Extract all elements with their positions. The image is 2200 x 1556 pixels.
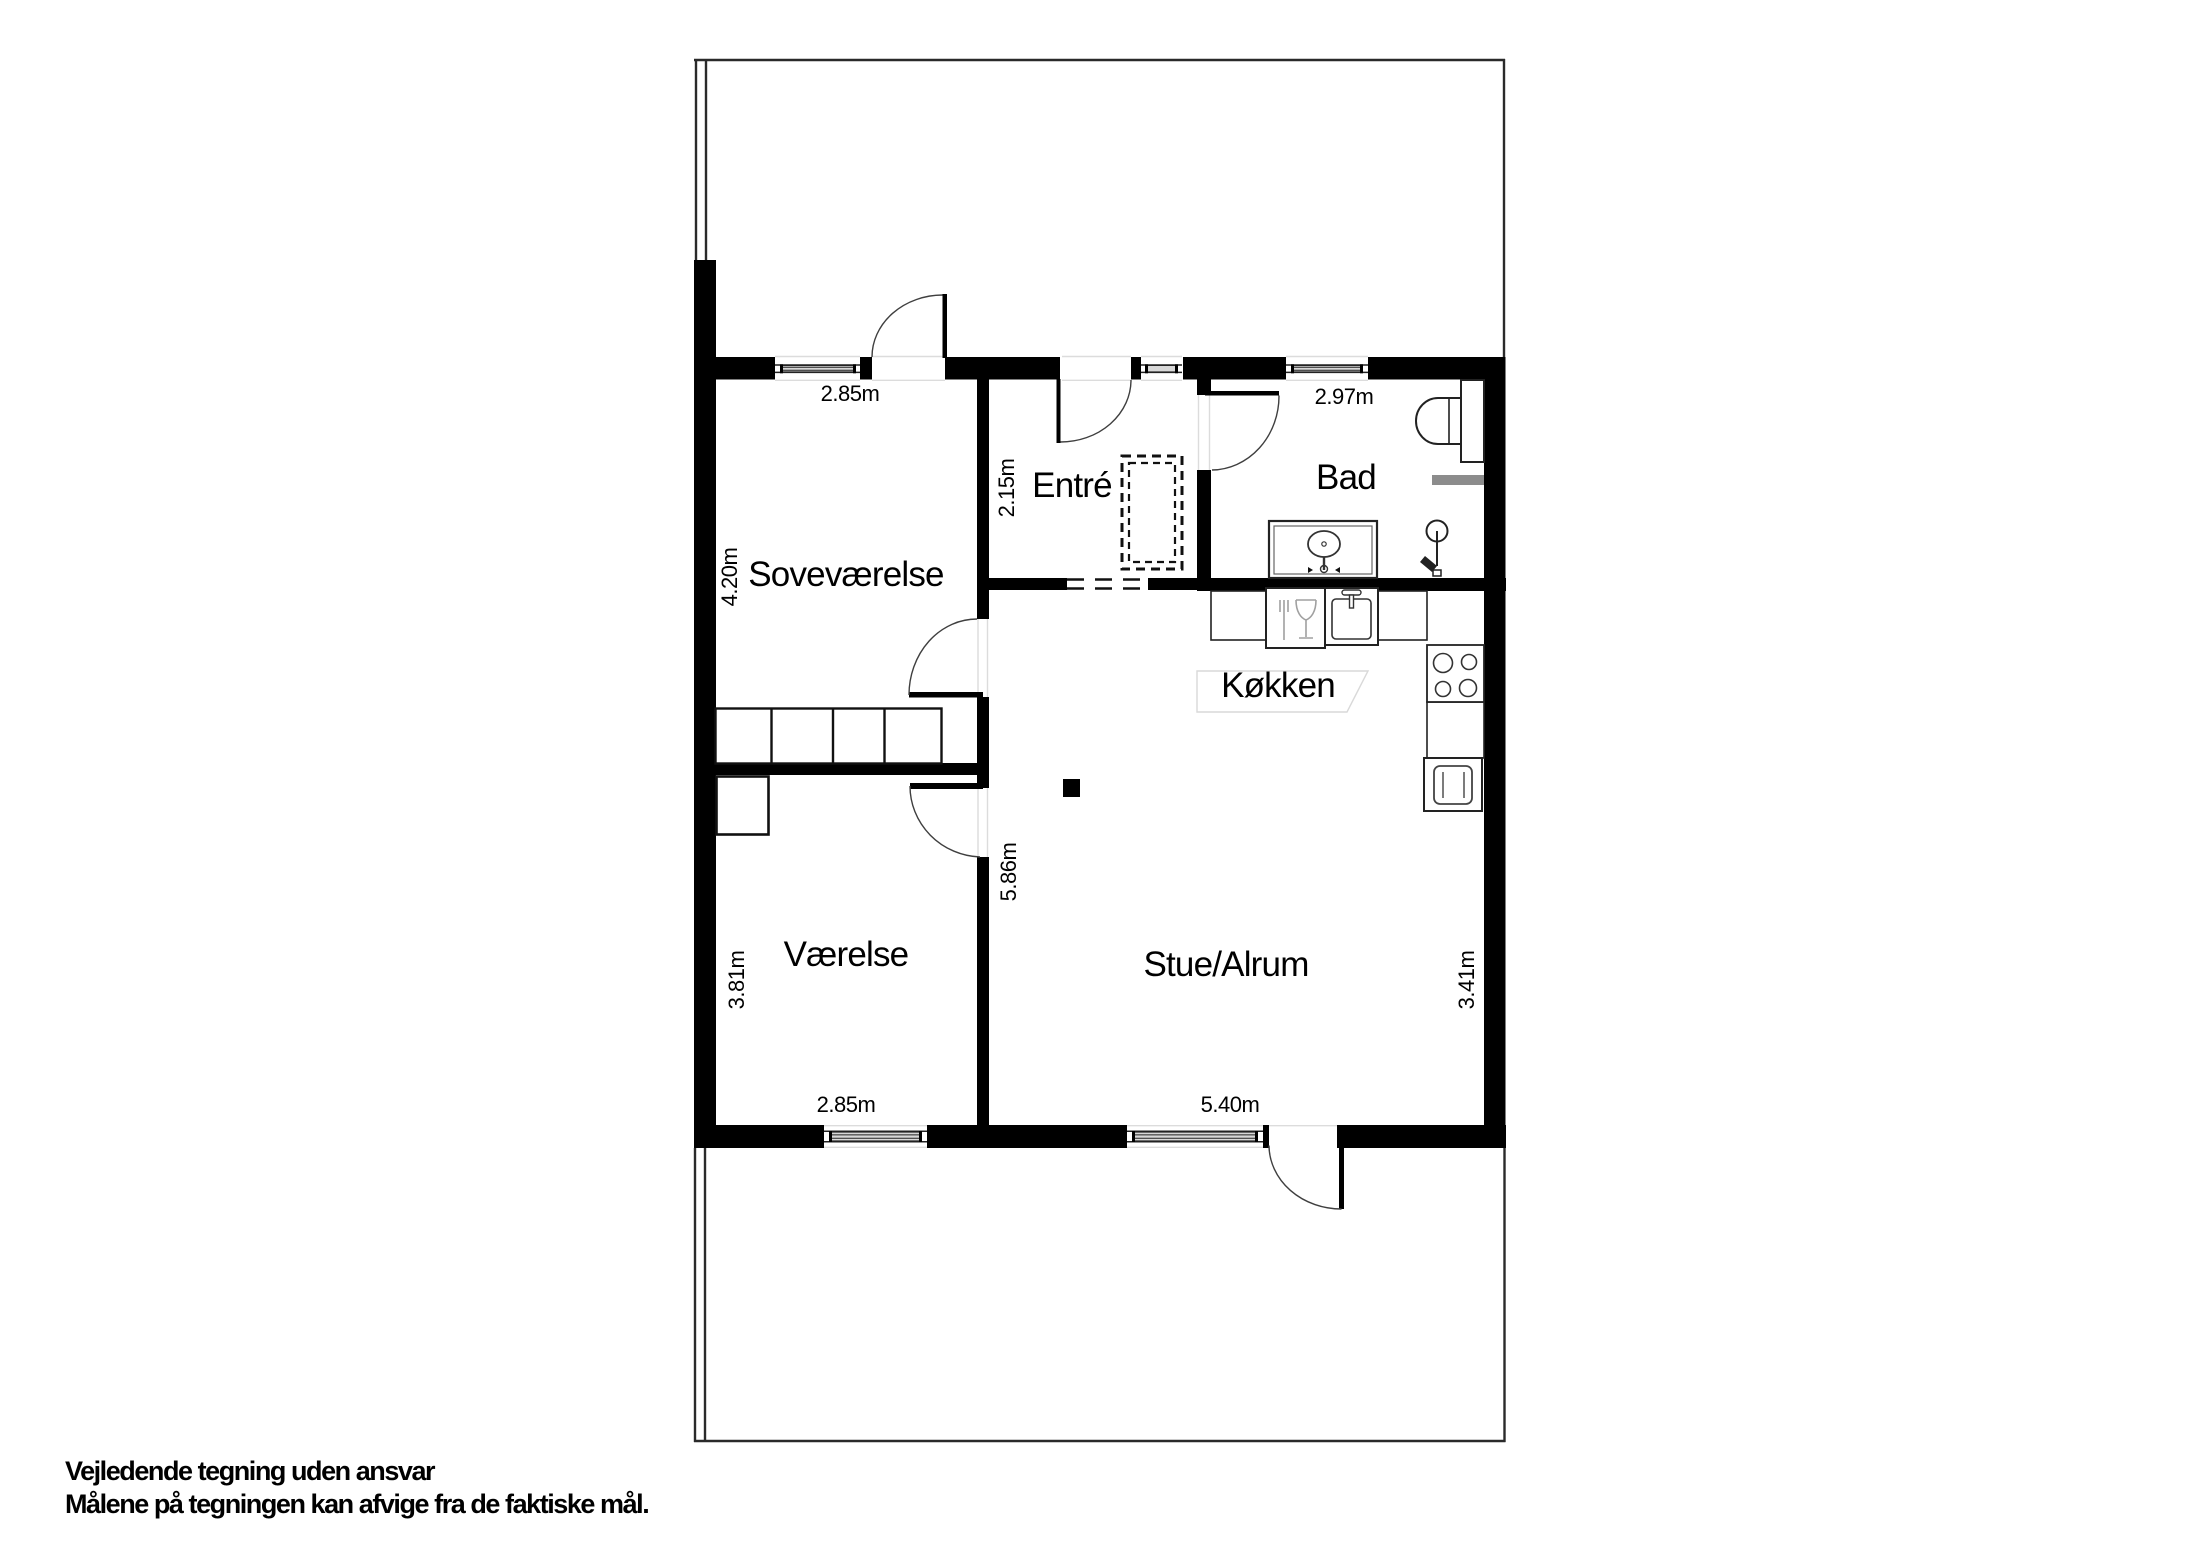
svg-text:2.97m: 2.97m [1315, 384, 1374, 409]
svg-text:Bad: Bad [1316, 458, 1376, 497]
svg-text:5.40m: 5.40m [1201, 1092, 1260, 1117]
svg-text:Værelse: Værelse [784, 935, 909, 974]
svg-text:Stue/Alrum: Stue/Alrum [1143, 945, 1308, 984]
svg-text:2.15m: 2.15m [994, 459, 1019, 518]
svg-text:2.85m: 2.85m [817, 1092, 876, 1117]
svg-text:Soveværelse: Soveværelse [748, 555, 943, 594]
svg-text:4.20m: 4.20m [717, 548, 742, 607]
svg-text:3.81m: 3.81m [724, 951, 749, 1010]
svg-text:Målene på tegningen kan afvige: Målene på tegningen kan afvige fra de fa… [65, 1489, 648, 1519]
svg-text:Entré: Entré [1032, 466, 1112, 505]
svg-text:5.86m: 5.86m [996, 843, 1021, 902]
svg-text:2.85m: 2.85m [821, 381, 880, 406]
svg-text:3.41m: 3.41m [1454, 951, 1479, 1010]
svg-text:Køkken: Køkken [1221, 666, 1335, 705]
svg-text:Vejledende tegning uden ansvar: Vejledende tegning uden ansvar [65, 1456, 436, 1486]
